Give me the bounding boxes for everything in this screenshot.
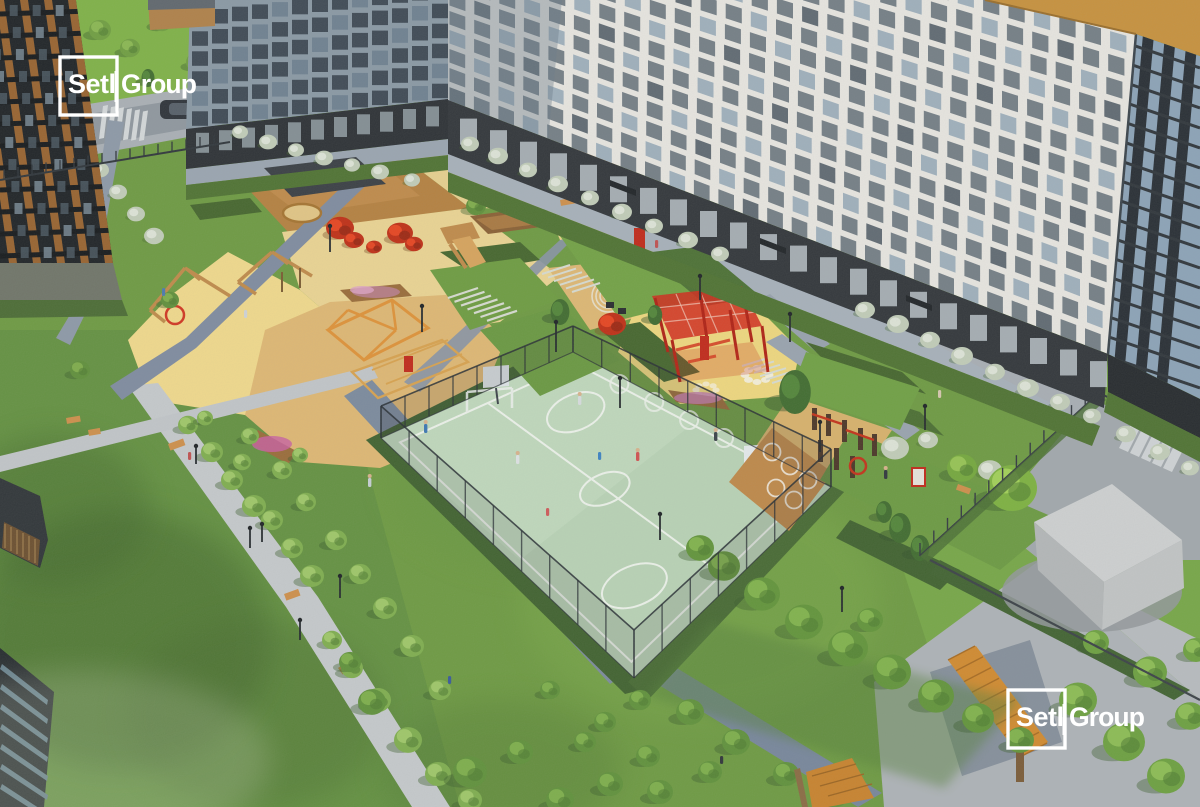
svg-text:Group: Group bbox=[121, 69, 197, 99]
svg-text:Setl: Setl bbox=[68, 69, 116, 99]
svg-text:Group: Group bbox=[1069, 702, 1145, 732]
svg-text:Setl: Setl bbox=[1016, 702, 1064, 732]
